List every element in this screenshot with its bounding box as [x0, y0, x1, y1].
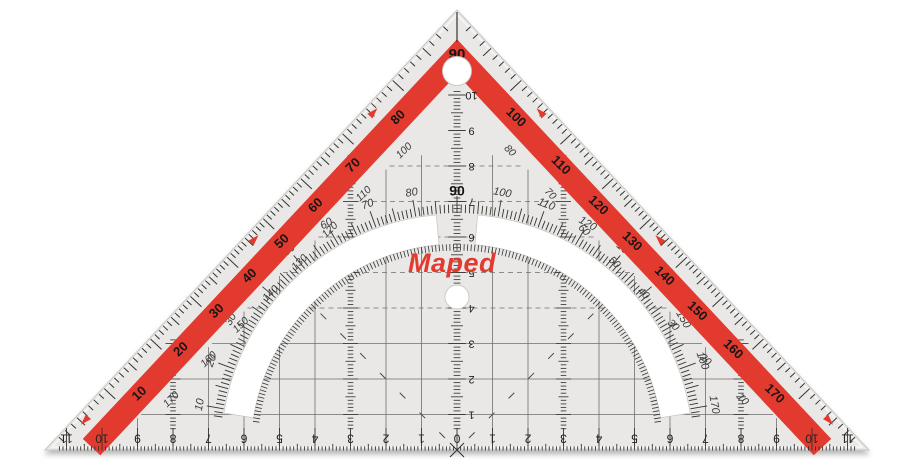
- svg-text:4: 4: [595, 431, 602, 445]
- svg-text:5: 5: [631, 431, 638, 445]
- svg-text:6: 6: [240, 431, 247, 445]
- svg-text:11: 11: [841, 431, 854, 445]
- svg-text:5: 5: [276, 431, 283, 445]
- product-photo: 1020304050607080901001101201301401501601…: [0, 0, 914, 460]
- svg-text:7: 7: [702, 431, 709, 445]
- svg-text:3: 3: [347, 431, 354, 445]
- svg-text:8: 8: [737, 431, 744, 445]
- brand: Maped: [408, 248, 496, 278]
- svg-text:2: 2: [468, 373, 474, 385]
- svg-text:9: 9: [134, 431, 141, 445]
- svg-text:90: 90: [449, 183, 465, 199]
- svg-text:2: 2: [524, 431, 531, 445]
- svg-text:6: 6: [468, 231, 474, 243]
- svg-text:2: 2: [382, 431, 389, 445]
- finger-hole: [445, 285, 469, 309]
- set-square-drawing: 1020304050607080901001101201301401501601…: [0, 0, 914, 460]
- svg-text:9: 9: [468, 125, 474, 137]
- svg-text:3: 3: [468, 338, 474, 350]
- apex-hole: [443, 57, 472, 86]
- svg-text:10: 10: [465, 89, 477, 101]
- svg-text:8: 8: [169, 431, 176, 445]
- brand-logo: Maped: [408, 248, 496, 278]
- svg-text:1: 1: [489, 431, 496, 445]
- svg-text:0: 0: [453, 431, 460, 445]
- svg-text:7: 7: [468, 196, 474, 208]
- svg-text:8: 8: [468, 160, 474, 172]
- svg-text:3: 3: [560, 431, 567, 445]
- svg-text:4: 4: [468, 302, 474, 314]
- svg-text:11: 11: [60, 431, 73, 445]
- svg-text:4: 4: [311, 431, 318, 445]
- svg-text:6: 6: [666, 431, 673, 445]
- svg-text:10: 10: [805, 431, 819, 445]
- svg-text:1: 1: [468, 409, 474, 421]
- svg-text:1: 1: [418, 431, 425, 445]
- svg-text:7: 7: [205, 431, 212, 445]
- svg-text:10: 10: [95, 431, 109, 445]
- svg-text:9: 9: [773, 431, 780, 445]
